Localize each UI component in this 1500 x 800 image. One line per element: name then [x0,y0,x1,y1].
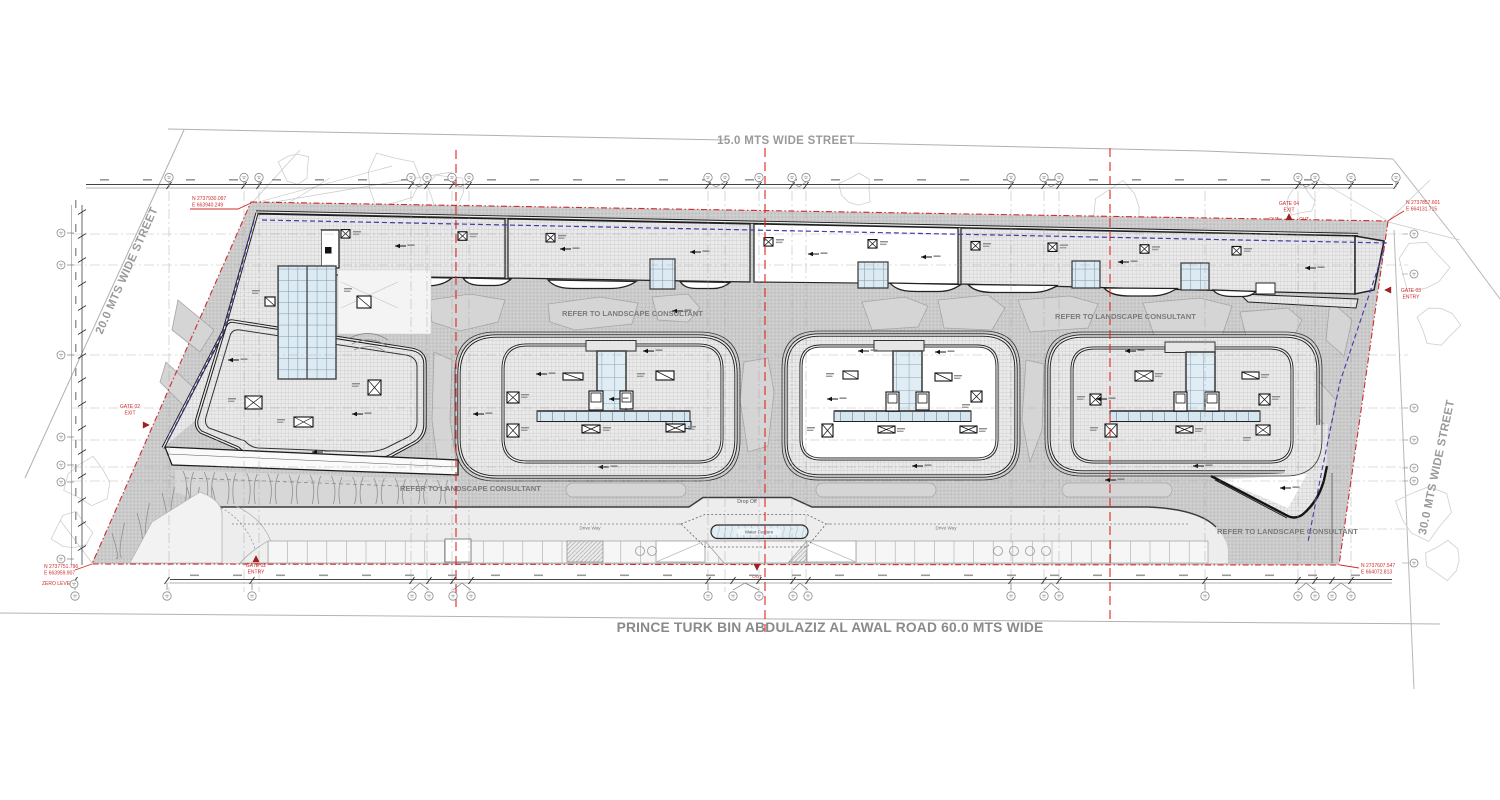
svg-text:GATE 02: GATE 02 [120,404,140,410]
svg-text:GATE 03: GATE 03 [1401,288,1421,294]
svg-text:OUT: OUT [1299,216,1309,221]
svg-text:GATE 02: GATE 02 [246,563,266,569]
svg-text:E 664131.715: E 664131.715 [1406,207,1437,213]
svg-text:ZERO LEVEL: ZERO LEVEL [42,581,73,587]
svg-text:N 2737857.601: N 2737857.601 [1406,200,1440,206]
svg-text:Drive Way: Drive Way [935,526,957,531]
svg-text:OUT: OUT [1269,216,1279,221]
svg-text:GATE 04: GATE 04 [1279,201,1299,207]
svg-text:E 663940.249: E 663940.249 [192,203,223,209]
svg-text:N 2737930.097: N 2737930.097 [192,196,226,202]
svg-text:Drop Off: Drop Off [737,499,757,505]
svg-text:PRINCE TURK BIN ABDULAZIZ AL A: PRINCE TURK BIN ABDULAZIZ AL AWAL ROAD 6… [617,620,1044,635]
svg-text:E 663959.907: E 663959.907 [44,571,75,577]
svg-text:E 664072.813: E 664072.813 [1361,570,1392,576]
svg-text:Drive Way: Drive Way [579,526,601,531]
svg-text:REFER TO LANDSCAPE CONSULTANT: REFER TO LANDSCAPE CONSULTANT [1217,527,1358,536]
svg-text:N 2737751.796: N 2737751.796 [44,564,78,570]
svg-text:EXIT: EXIT [124,411,135,417]
svg-text:ENTRY: ENTRY [1403,295,1421,301]
svg-text:REFER TO LANDSCAPE CONSULTANT: REFER TO LANDSCAPE CONSULTANT [1055,312,1196,321]
svg-text:EXIT: EXIT [1283,208,1294,214]
svg-text:REFER TO LANDSCAPE CONSULTANT: REFER TO LANDSCAPE CONSULTANT [400,484,541,493]
svg-text:ENTRY: ENTRY [248,570,266,576]
svg-text:N 2737607.547: N 2737607.547 [1361,563,1395,569]
svg-text:15.0 MTS WIDE STREET: 15.0 MTS WIDE STREET [717,135,855,147]
svg-text:REFER TO LANDSCAPE CONSULTANT: REFER TO LANDSCAPE CONSULTANT [562,309,703,318]
